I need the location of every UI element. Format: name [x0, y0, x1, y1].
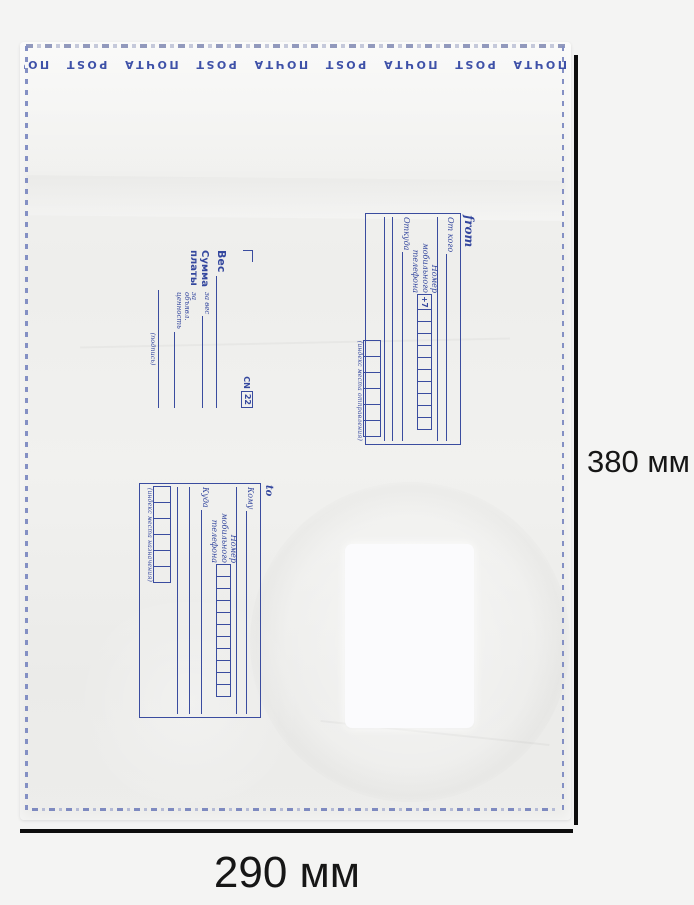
- write-in-line: [392, 217, 394, 441]
- signature-caption: (подпись): [149, 250, 157, 408]
- to-title: to: [261, 483, 275, 718]
- from-title: from: [461, 213, 477, 445]
- write-in-line: [201, 510, 203, 714]
- signature-line: [158, 290, 160, 408]
- origin-label: Откуда: [402, 217, 411, 252]
- phone-label: Номер мобильного телефона: [210, 487, 238, 565]
- postcode-caption: (индекс места назначения): [146, 487, 153, 583]
- product-photo: ПОЧТА POST ПОЧТА POST ПОЧТА POST ПОЧТА P…: [0, 0, 694, 905]
- form-cell: [217, 684, 232, 697]
- phone-prefix-cell: +7: [418, 294, 433, 310]
- write-in-line: [189, 487, 191, 714]
- height-dimension-label: 380 мм: [587, 444, 690, 480]
- write-in-line: [246, 511, 248, 714]
- phone-cells: +7: [418, 295, 433, 310]
- form-cell: [363, 356, 381, 373]
- write-in-line: [446, 254, 448, 441]
- form-cell: [153, 518, 171, 535]
- cn-label: CN: [243, 376, 252, 389]
- sender-form-block: from От кого Номер мобильного телефона +…: [365, 213, 477, 445]
- write-in-line: [174, 332, 176, 408]
- recipient-form-block: to Кому Номер мобильного телефона Куда: [139, 483, 275, 718]
- write-in-line: [216, 276, 218, 408]
- form-cell: [153, 566, 171, 583]
- form-cell: [363, 388, 381, 405]
- cn22-mark: CN 22: [241, 376, 253, 408]
- sum-label: Сумма платы: [169, 250, 210, 292]
- phone-digit-cells: [418, 310, 433, 430]
- phone-label: Номер мобильного телефона: [411, 217, 439, 295]
- postal-envelope: ПОЧТА POST ПОЧТА POST ПОЧТА POST ПОЧТА P…: [20, 42, 571, 820]
- flap-seam: [26, 175, 565, 221]
- from-whom-label: От кого: [446, 217, 455, 254]
- form-cell: [363, 404, 381, 421]
- payment-form-block: CN 22 Вес Сумма платы за вес за объявл. …: [149, 250, 253, 408]
- width-dimension-line: [20, 829, 573, 833]
- destination-label: Куда: [201, 487, 210, 510]
- form-cell: [153, 534, 171, 551]
- blank-label: [345, 544, 474, 728]
- postcode-caption: (индекс места отправления): [356, 341, 363, 441]
- form-cell: [418, 417, 433, 430]
- from-box: От кого Номер мобильного телефона +7 Отк…: [365, 213, 461, 445]
- form-cell: [153, 486, 171, 503]
- form-cell: [363, 372, 381, 389]
- postcode-cells: [363, 341, 381, 441]
- cn-number: 22: [241, 391, 253, 408]
- weight-label: Вес: [216, 250, 227, 276]
- form-cell: [153, 502, 171, 519]
- corner-mark: [243, 250, 253, 262]
- form-cell: [363, 420, 381, 437]
- to-box: Кому Номер мобильного телефона Куда: [139, 483, 261, 718]
- brand-strip: ПОЧТА POST ПОЧТА POST ПОЧТА POST ПОЧТА P…: [24, 55, 567, 73]
- width-dimension-label: 290 мм: [0, 848, 574, 898]
- to-whom-label: Кому: [246, 487, 255, 511]
- write-in-line: [177, 487, 179, 714]
- write-in-line: [384, 217, 386, 441]
- height-dimension-line: [574, 55, 578, 825]
- per-value-label: за объявл. ценность: [174, 292, 197, 332]
- postcode-cells: [153, 487, 171, 583]
- brand-strip-text: ПОЧТА POST ПОЧТА POST ПОЧТА POST ПОЧТА P…: [24, 58, 567, 71]
- stitch-dashes-bottom: [32, 808, 559, 811]
- phone-digit-cells: [217, 565, 232, 697]
- per-weight-label: за вес: [202, 292, 210, 316]
- form-cell: [363, 340, 381, 357]
- write-in-line: [402, 252, 404, 441]
- write-in-line: [202, 316, 204, 408]
- form-cell: [153, 550, 171, 567]
